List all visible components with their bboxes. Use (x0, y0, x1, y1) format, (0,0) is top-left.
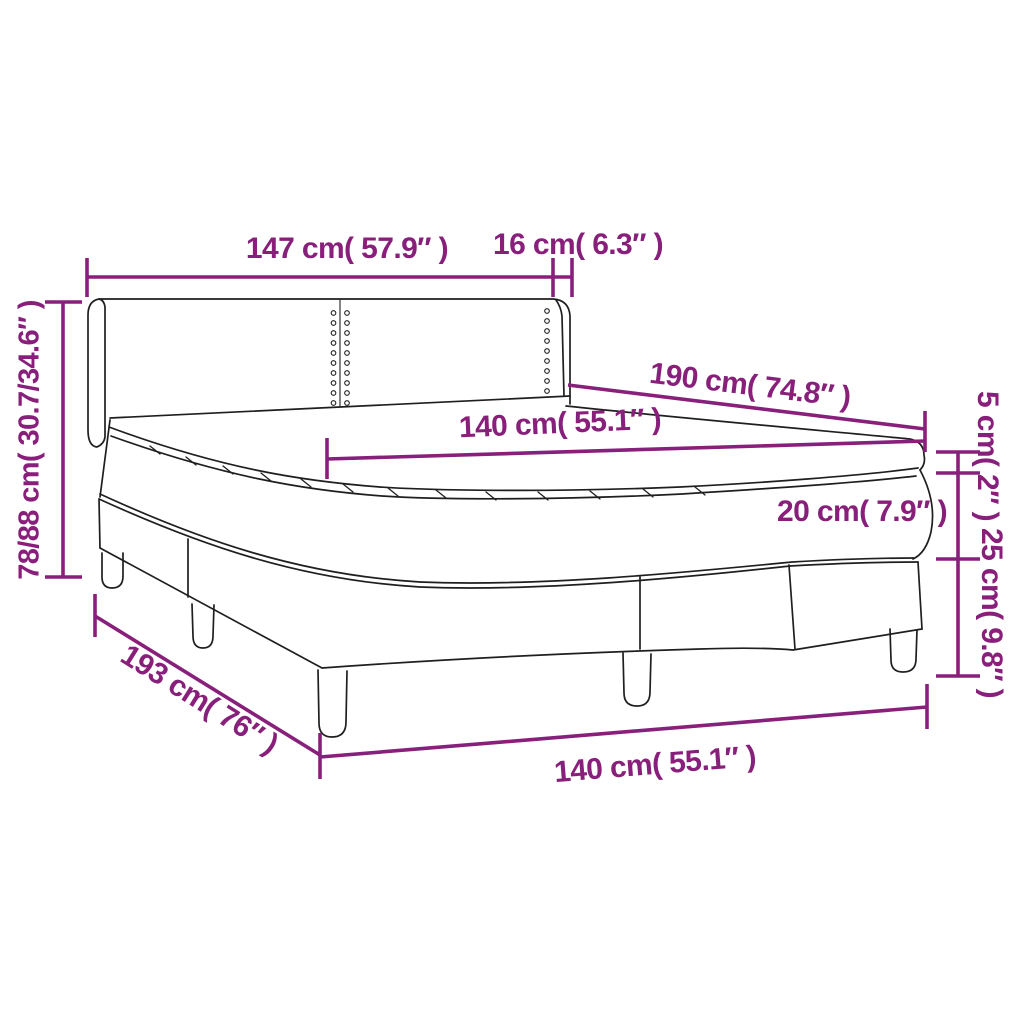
dim-line-headboard-height (45, 302, 82, 577)
headboard-studs-icon (331, 309, 549, 406)
dim-label-topper-height: 5 cm( 2″ ) (972, 391, 1002, 521)
dim-label-headboard-height: 78/88 cm( 30.7/34.6″ ) (16, 300, 45, 580)
dim-label-headboard-width: 147 cm( 57.9″ ) (246, 234, 448, 264)
dimension-diagram: 147 cm( 57.9″ ) 16 cm( 6.3″ ) 190 cm( 74… (0, 0, 1024, 1024)
dim-label-mattress-height: 20 cm( 7.9″ ) (777, 497, 947, 527)
dim-label-headboard-side-depth: 16 cm( 6.3″ ) (493, 230, 663, 260)
dim-label-base-height: 25 cm( 9.8″ ) (976, 528, 1006, 698)
